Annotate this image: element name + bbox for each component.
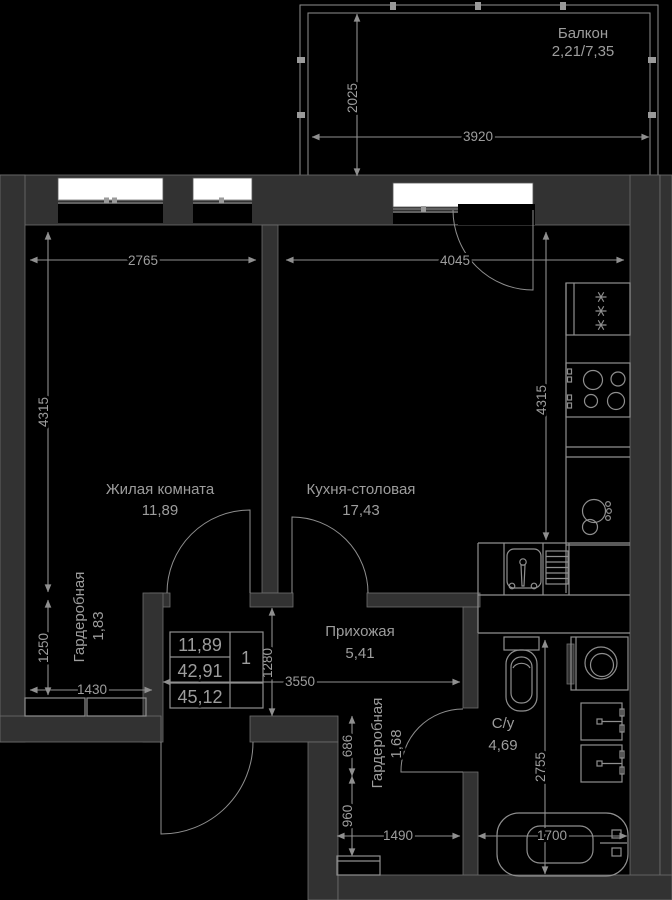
dim-label: 4315 [36, 397, 51, 427]
wardrobe-left-label: Гардеробная [71, 572, 88, 663]
window-living-1 [58, 178, 163, 200]
kitchen-label: Кухня-столовая [307, 481, 416, 498]
mullion-tick [560, 2, 566, 10]
stat-area-without-balcony: 42,91 [177, 661, 222, 681]
dim-label: 1280 [260, 648, 275, 678]
dim-label: 1250 [36, 633, 51, 663]
floor-plan-svg: 2765 4045 4315 4315 1250 1430 1280 3550 … [0, 0, 672, 900]
dim-label: 3920 [463, 129, 493, 144]
wardrobe-low-label: Гардеробная [369, 698, 386, 789]
wall-living-kitchen [262, 225, 278, 593]
dim-label: 4045 [440, 253, 470, 268]
wall-hall-top [367, 593, 480, 607]
mullion-tick [390, 2, 396, 10]
dim-label: 1700 [537, 828, 567, 843]
dim-label: 2025 [345, 83, 360, 113]
mullion-tick [297, 112, 305, 118]
mullion-tick [648, 112, 656, 118]
dim-label: 1430 [77, 682, 107, 697]
dim-label: 960 [340, 805, 355, 828]
wall-corridor-left [308, 742, 338, 900]
bathroom-area: 4,69 [488, 737, 517, 754]
balcony-label: Балкон [558, 25, 608, 42]
wall-bath-left [463, 772, 478, 878]
living-label: Жилая комната [106, 481, 215, 498]
dim-label: 4315 [534, 385, 549, 415]
mullion-tick [475, 2, 481, 10]
living-area: 11,89 [142, 502, 178, 519]
dim-label: 2765 [128, 253, 158, 268]
radiator-symbol [546, 551, 568, 584]
window-balcony-door [393, 183, 533, 207]
dim-label: 1490 [383, 828, 413, 843]
wall-right [630, 175, 660, 880]
hallway-area: 5,41 [345, 645, 374, 662]
wall-left [0, 175, 25, 742]
hallway-label: Прихожая [325, 623, 395, 640]
window-living-2 [193, 178, 252, 200]
kitchen-area: 17,43 [342, 502, 380, 519]
floor-plan: 2765 4045 4315 4315 1250 1430 1280 3550 … [0, 0, 672, 900]
mullion-tick [648, 57, 656, 63]
stat-total-area: 45,12 [177, 687, 222, 707]
dim-label: 2755 [533, 752, 548, 782]
wall-hall-top [250, 593, 293, 607]
margin-right [660, 175, 672, 900]
bathroom-label: С/у [492, 715, 515, 732]
balcony-area: 2,21/7,35 [552, 43, 615, 60]
wall-wardrobe-bottom [0, 716, 161, 742]
mullion-tick [297, 57, 305, 63]
dim-label: 3550 [285, 674, 315, 689]
wall-bath-left [463, 607, 478, 708]
wall-hall-bottom [250, 716, 338, 742]
wardrobe-low-area: 1,68 [388, 729, 405, 758]
dim-label: 686 [340, 735, 355, 758]
wall-bottom [338, 875, 672, 900]
stat-rooms-count: 1 [241, 648, 251, 668]
wardrobe-left-area: 1,83 [90, 611, 107, 640]
stat-living-area: 11,89 [178, 635, 222, 655]
